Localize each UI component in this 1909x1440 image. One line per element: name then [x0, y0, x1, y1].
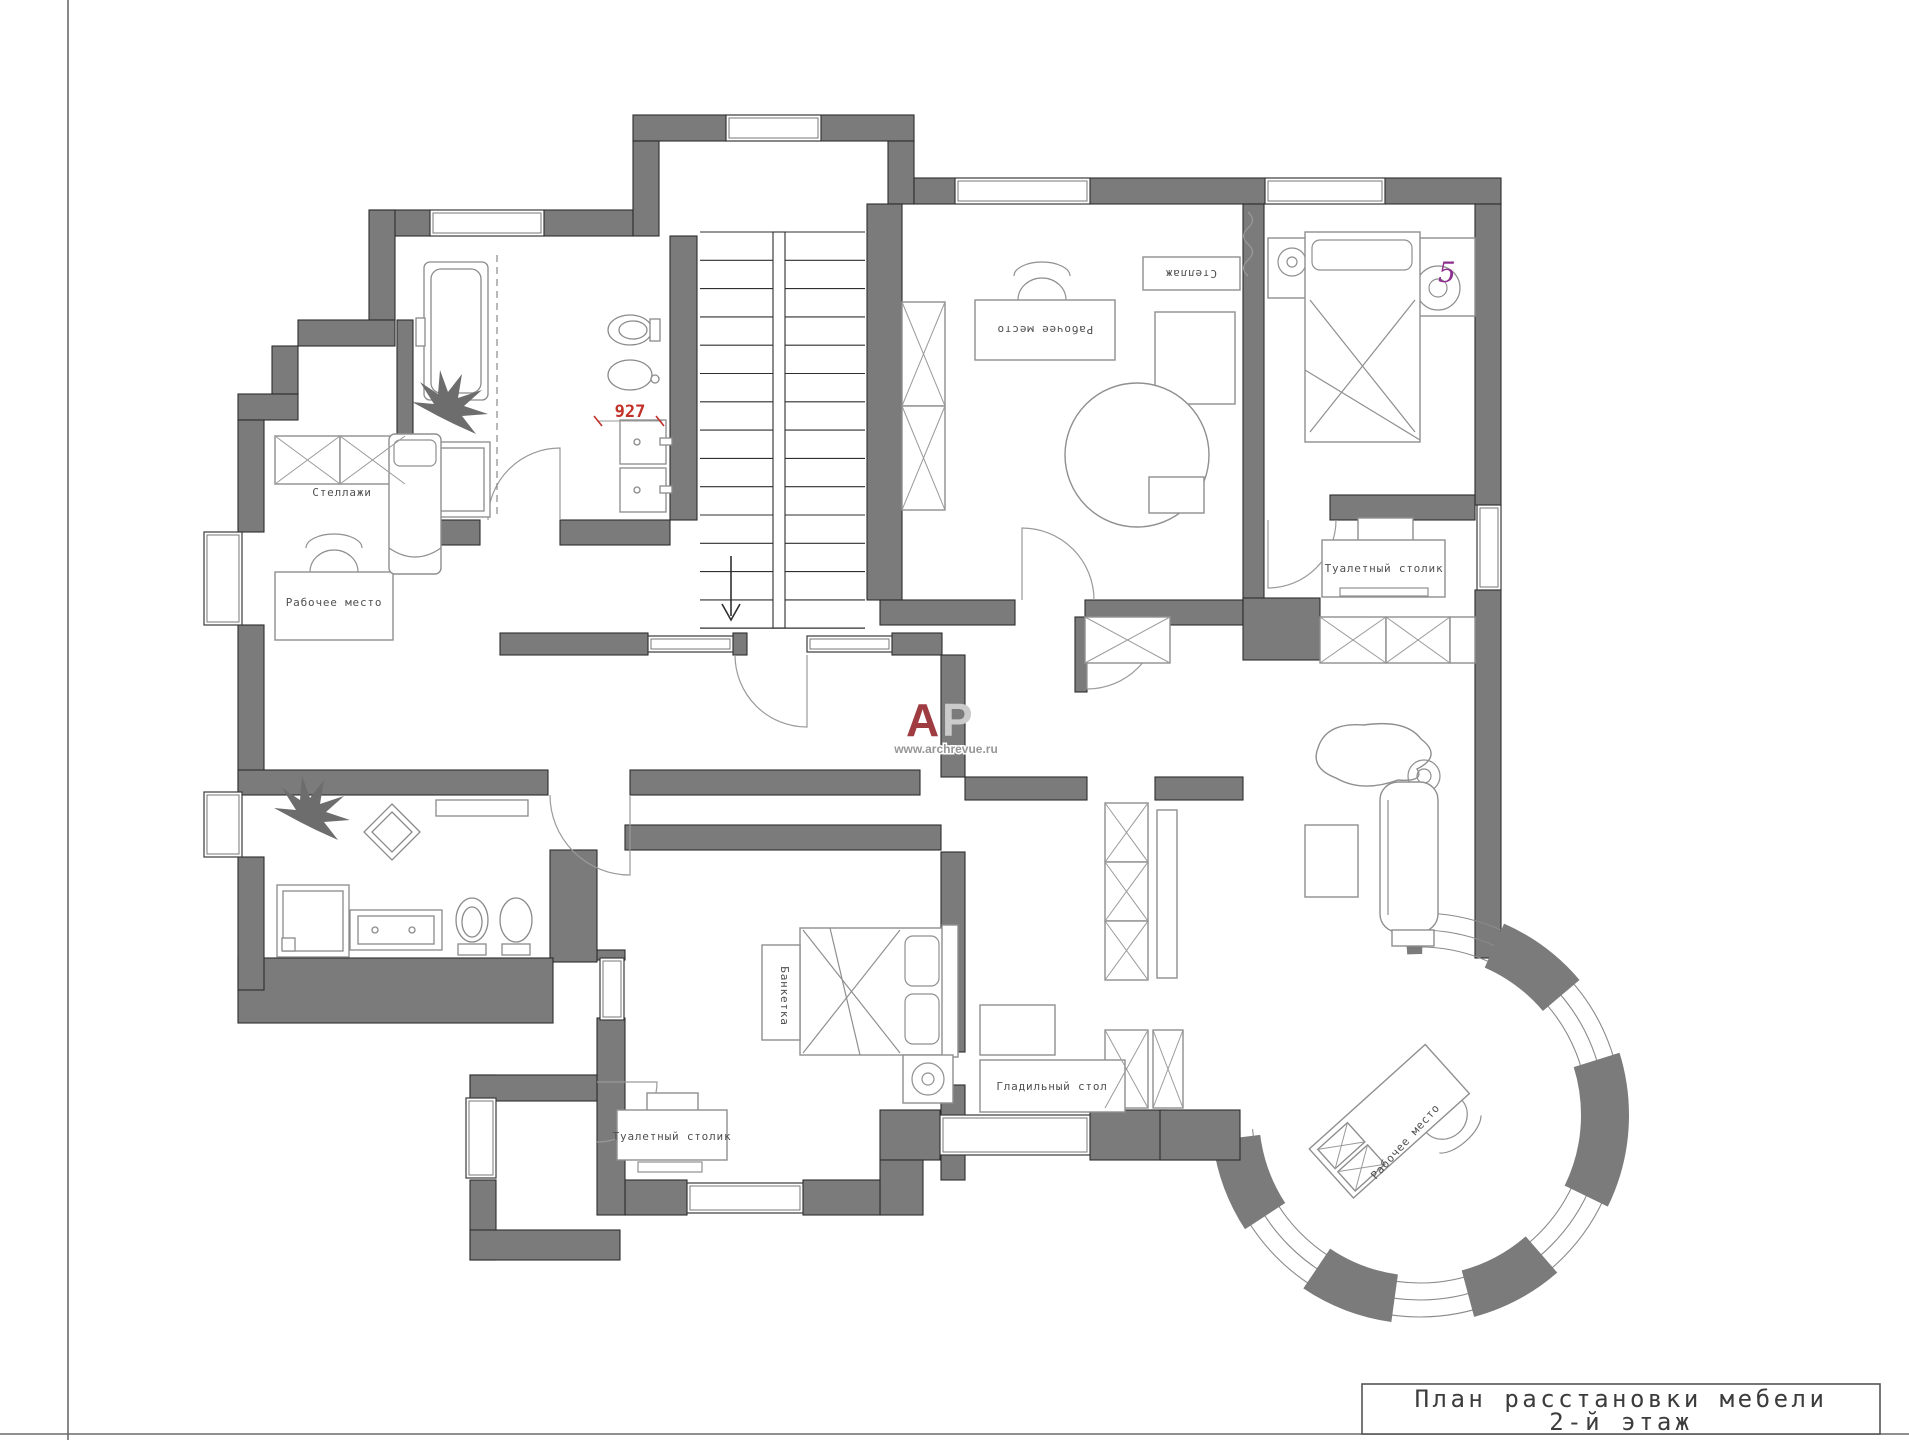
label-shelves: Стеллажи	[312, 486, 371, 499]
washbasin	[620, 420, 666, 464]
sliding-door-pane	[1157, 810, 1177, 978]
label-workplace-top: Рабочее место	[997, 323, 1094, 336]
nightstand	[903, 1055, 953, 1103]
side-table	[1305, 825, 1358, 897]
label-banquette: Банкетка	[778, 966, 791, 1025]
bidet	[500, 898, 532, 942]
stair-stringer	[773, 232, 785, 628]
logo-letter-p: Р	[942, 694, 973, 746]
rug	[1316, 724, 1431, 786]
bed-double	[800, 928, 945, 1055]
room-number-5: 5	[1438, 256, 1456, 289]
walk-in-closet	[980, 803, 1183, 1112]
stool	[638, 1162, 702, 1172]
dimension-927: 927	[615, 402, 646, 422]
watermark-logo: А Р www.archrevue.ru	[893, 694, 998, 756]
crib-step	[1149, 477, 1204, 513]
label-workplace-left: Рабочее место	[286, 596, 383, 609]
staircase	[700, 232, 865, 628]
mirror	[1358, 518, 1413, 542]
bench	[436, 800, 528, 816]
bidet	[608, 360, 652, 390]
shelf	[1450, 617, 1475, 663]
label-dressing-table-bottom: Туалетный столик	[613, 1130, 732, 1143]
label-ironing-table: Гладильный стол	[996, 1080, 1107, 1093]
bathroom-top	[412, 262, 672, 517]
chaise-foot	[1392, 930, 1434, 946]
bathroom-bottom	[274, 776, 532, 957]
chaise-longue	[1380, 782, 1438, 932]
logo-letter-a: А	[906, 694, 939, 746]
bedroom-top-middle	[902, 257, 1240, 527]
bed-double	[1305, 232, 1420, 442]
chair	[310, 550, 358, 572]
label-dressing-table-right: Туалетный столик	[1325, 562, 1444, 575]
bathtub-faucet	[416, 318, 425, 346]
chair	[1018, 278, 1066, 300]
washbasin	[620, 468, 666, 512]
left-room	[275, 434, 441, 640]
label-shelf: Стеллаж	[1165, 267, 1217, 280]
title-line2: 2-й этаж	[1549, 1408, 1693, 1436]
logo-url: www.archrevue.ru	[893, 742, 998, 756]
headboard	[942, 925, 958, 1057]
floor-plan-canvas: Стеллажи Рабочее место Рабочее место Сте…	[0, 0, 1909, 1440]
shelf	[980, 1005, 1055, 1055]
